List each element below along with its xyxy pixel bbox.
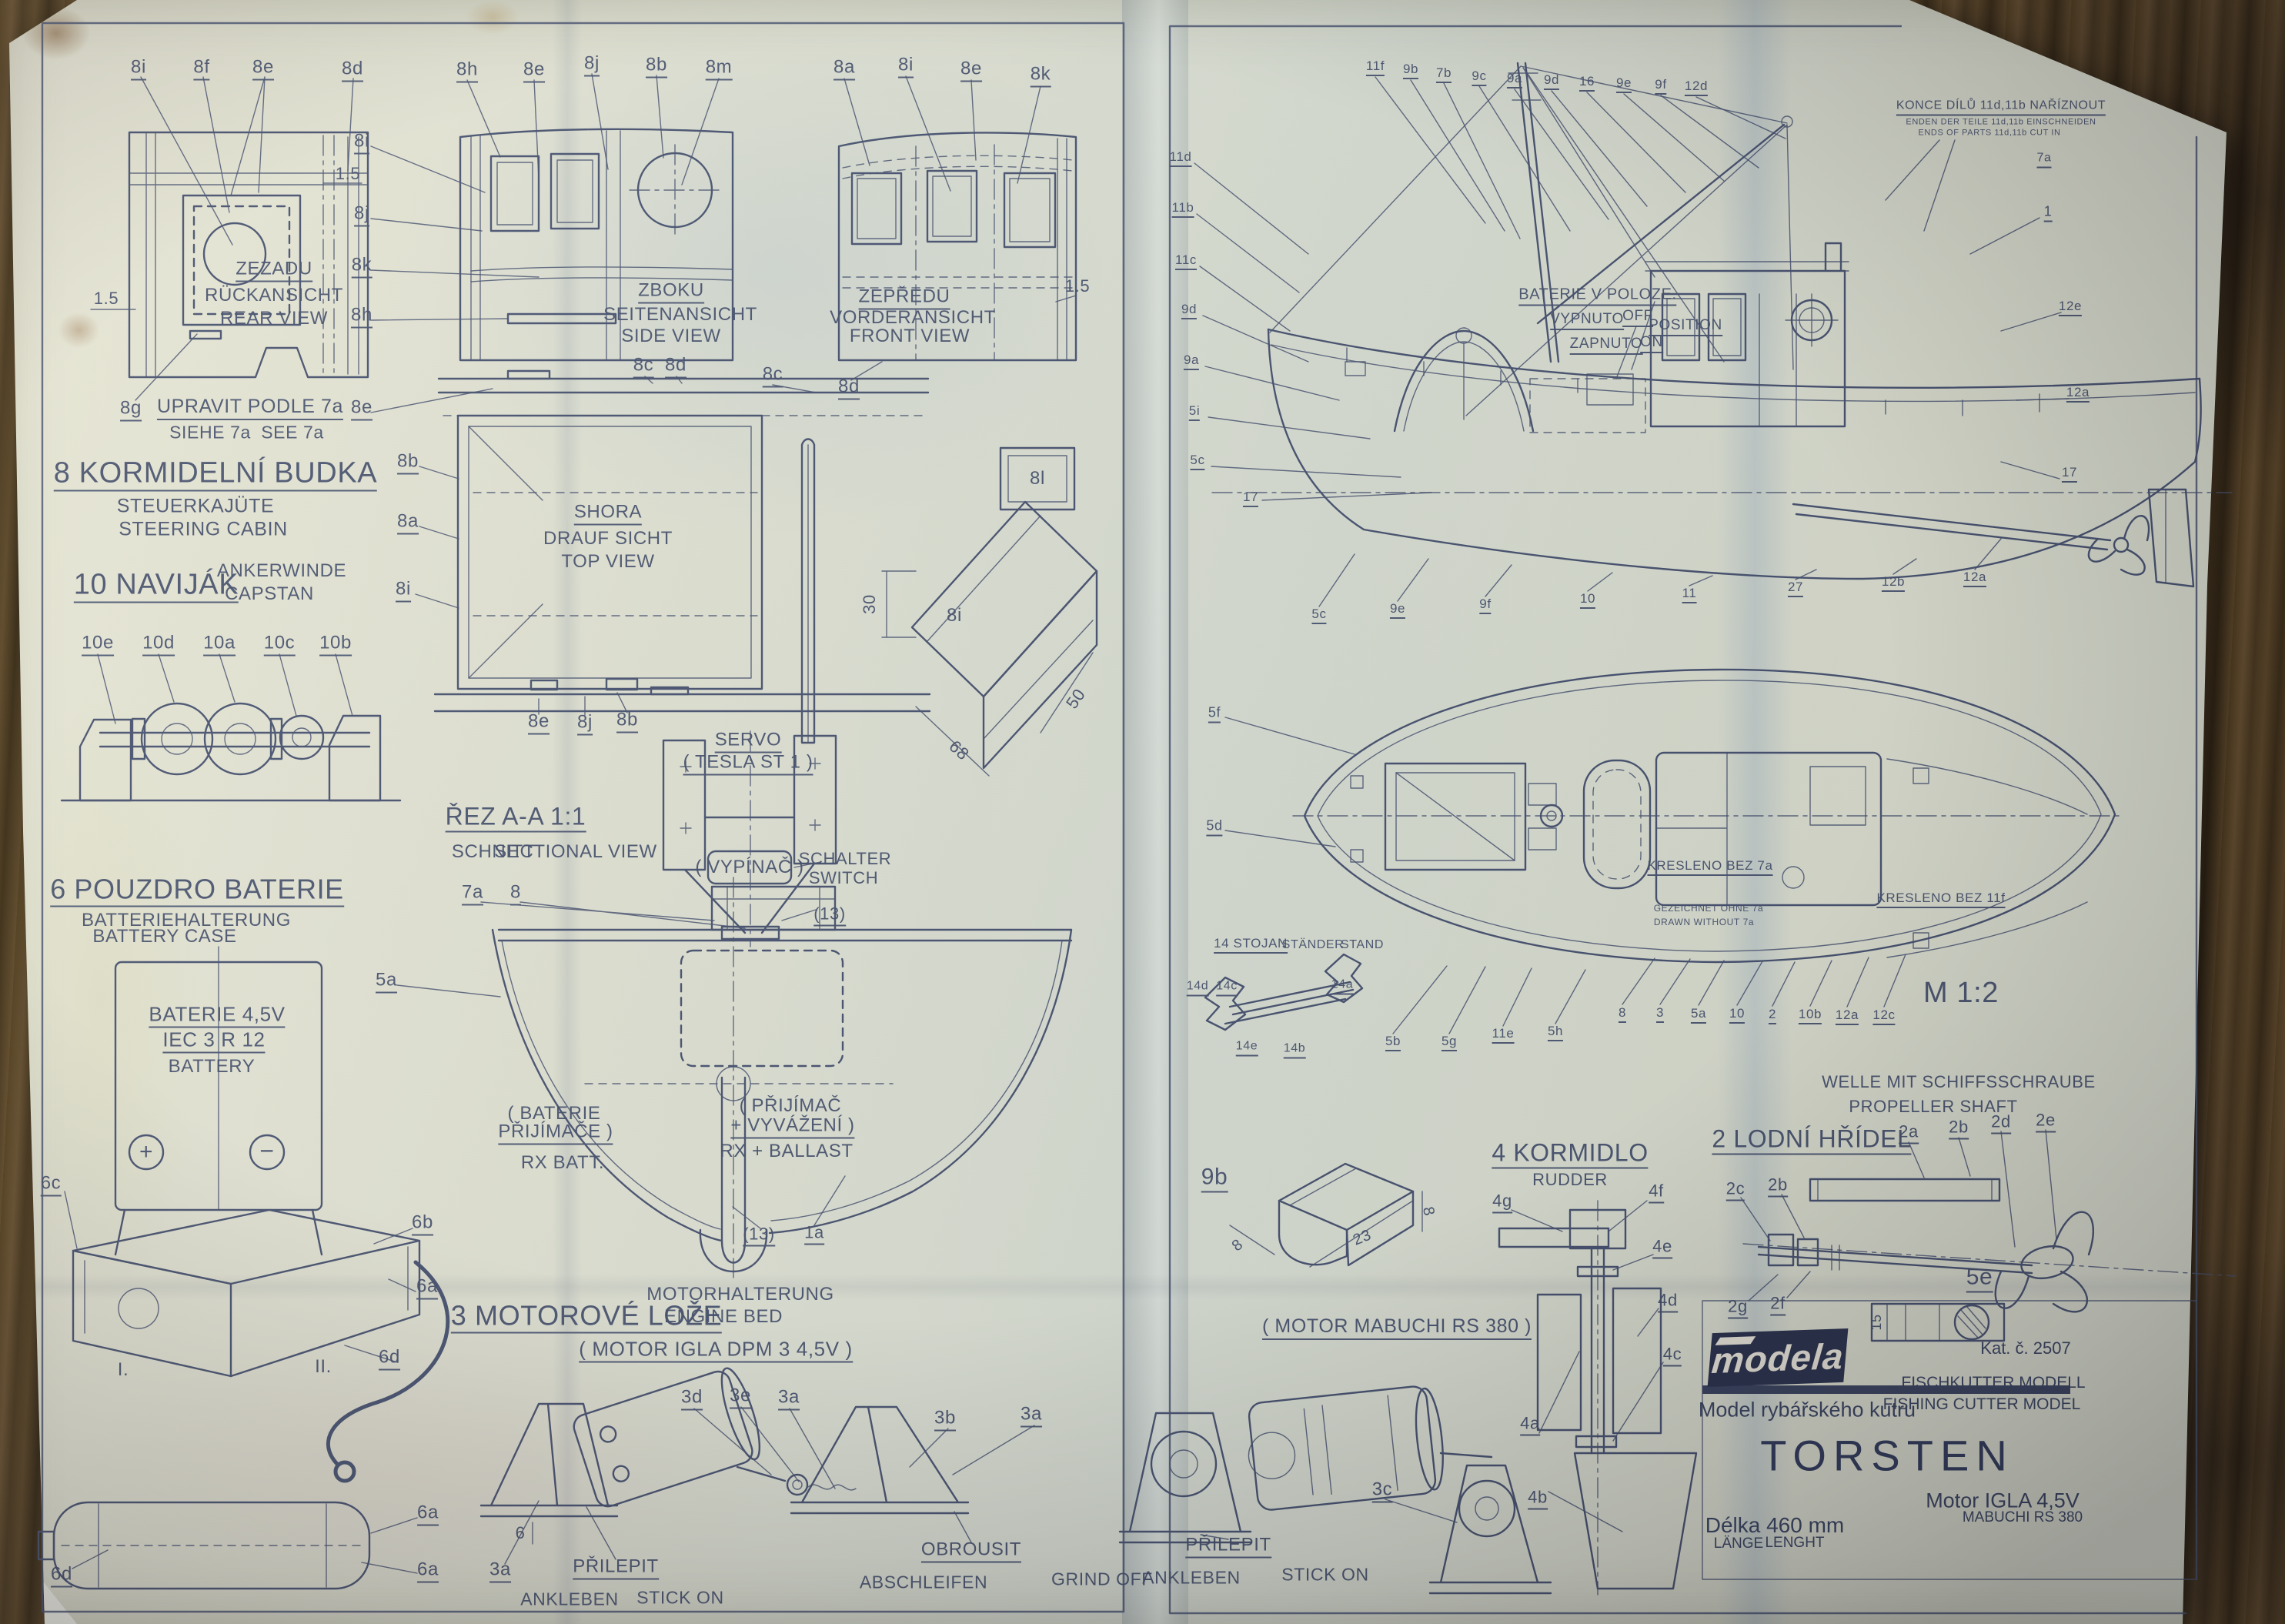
part-label: 8e xyxy=(523,61,545,83)
part-label: 4g xyxy=(1492,1193,1512,1214)
part-label: 2a xyxy=(1899,1124,1919,1144)
part-label: 8a xyxy=(833,58,855,81)
modela-logo-text: modela xyxy=(1710,1335,1846,1382)
part-label: 8h xyxy=(456,61,478,83)
part-label: DRAUF SICHT xyxy=(543,530,673,548)
part-label: PŘILEPIT xyxy=(573,1558,659,1580)
part-label: 6 POUZDRO BATERIE xyxy=(50,876,344,907)
part-label: 1.5 xyxy=(336,165,360,182)
part-label: 8i xyxy=(396,580,411,603)
part-label: STAND xyxy=(1341,939,1384,951)
part-label: 7a xyxy=(2037,152,2052,169)
part-label: KRESLENO BEZ 7a xyxy=(1647,859,1772,876)
part-label: M 1:2 xyxy=(1923,978,1999,1007)
part-label: 3c xyxy=(1372,1481,1393,1503)
part-label: SIEHE 7a xyxy=(169,424,251,442)
part-label: 8 KORMIDELNÍ BUDKA xyxy=(54,459,377,492)
battery-case-drawing xyxy=(115,947,322,1255)
part-label: VYPNUTO xyxy=(1550,312,1624,330)
part-label: 3a xyxy=(489,1561,511,1583)
part-label: ŘEZ A-A 1:1 xyxy=(446,804,586,833)
part-label: 11d xyxy=(1170,150,1192,167)
part-label: 10 xyxy=(1580,592,1595,609)
part-label: 9f xyxy=(1479,597,1491,614)
part-label: ANKLEBEN xyxy=(520,1591,619,1609)
part-label: STEERING CABIN xyxy=(119,520,288,540)
part-label: ENDS OF PARTS 11d,11b CUT IN xyxy=(1918,129,2060,138)
part-label: 2d xyxy=(1991,1114,2011,1134)
part-label: 9d xyxy=(1544,73,1559,90)
hull-cross-section xyxy=(397,877,1071,1278)
part-label: STICK ON xyxy=(1281,1566,1368,1584)
part-label: 5c xyxy=(1311,607,1326,624)
part-label: OBROUSIT xyxy=(921,1541,1021,1563)
part-label: SHORA xyxy=(574,503,642,526)
part-label: KONCE DÍLŮ 11d,11b NAŘÍZNOUT xyxy=(1896,100,2106,116)
part-label: FRONT VIEW xyxy=(850,327,970,346)
part-label: 27 xyxy=(1788,580,1803,597)
length-english: LENGHT xyxy=(1765,1535,1824,1552)
part-label: ENDEN DER TEILE 11d,11b EINSCHNEIDEN xyxy=(1906,119,2096,127)
part-label: 2 LODNÍ HŘÍDEL xyxy=(1712,1127,1911,1155)
part-label: 10a xyxy=(203,634,236,657)
part-label: 8l xyxy=(1030,469,1045,488)
part-label: (13) xyxy=(813,906,846,927)
part-label: ZEZADU xyxy=(236,260,312,282)
part-label: 4 KORMIDLO xyxy=(1492,1141,1648,1169)
part-label: 11f xyxy=(1366,59,1385,76)
part-label: 6d xyxy=(51,1566,72,1588)
part-label: 14c xyxy=(1216,981,1238,997)
part-label: 8e xyxy=(351,399,372,421)
part-label: 8k xyxy=(352,256,372,279)
part-label: 3d xyxy=(681,1388,703,1411)
part-label: 11c xyxy=(1175,253,1197,270)
part-label: 8f xyxy=(193,58,209,81)
part-label: 17 xyxy=(1243,490,1258,507)
part-label: 10d xyxy=(142,634,175,657)
part-label: MOTORHALTERUNG xyxy=(646,1285,834,1304)
part-label: I. xyxy=(118,1361,129,1379)
part-label: 14b xyxy=(1284,1043,1306,1059)
battery-holder-drawings xyxy=(38,1191,448,1589)
part-label: 3e xyxy=(730,1387,751,1409)
length-german: LÄNGE xyxy=(1714,1535,1763,1552)
part-label: II. xyxy=(315,1358,332,1376)
rudder-drawing xyxy=(1499,1201,1696,1595)
part-label: ABSCHLEIFEN xyxy=(860,1574,987,1592)
part-label: 4b xyxy=(1528,1489,1548,1510)
part-label: 14a xyxy=(1331,979,1354,995)
part-label: SEITENANSICHT xyxy=(603,306,757,324)
part-label: UPRAVIT PODLE 7a xyxy=(157,397,343,420)
part-label: 30 xyxy=(861,594,878,614)
part-label: 7a xyxy=(462,884,483,906)
part-label: KRESLENO BEZ 11f xyxy=(1876,891,2005,908)
part-label: 2e xyxy=(2036,1112,2056,1133)
part-label: SEE 7a xyxy=(261,424,324,442)
part-label: 12d xyxy=(1685,79,1708,96)
part-label: 14d xyxy=(1187,981,1209,997)
part-label: 6c xyxy=(41,1175,62,1197)
part-label: ON xyxy=(1640,335,1663,353)
part-label: 2 xyxy=(1769,1007,1776,1024)
part-label: 8e xyxy=(252,58,274,81)
part-label: ( VYPÍNAČ ) xyxy=(695,858,803,877)
part-label: 11b xyxy=(1172,201,1194,218)
part-label: IEC 3 R 12 xyxy=(162,1030,265,1054)
part-label: GEZEICHNET OHNE 7a xyxy=(1654,904,1764,913)
part-label: 12e xyxy=(2059,299,2082,316)
part-label: ANKLEBEN xyxy=(1142,1569,1241,1587)
part-label: ZAPNUTO xyxy=(1570,336,1643,355)
part-label: 8c xyxy=(763,366,783,388)
part-label: 8b xyxy=(616,711,638,733)
catalog-number: Kat. č. 2507 xyxy=(1980,1338,2070,1358)
part-label: RX + BALLAST xyxy=(720,1142,853,1161)
modela-logo: modela xyxy=(1708,1328,1849,1387)
cabin-top-view xyxy=(416,416,1097,776)
part-label: 12b xyxy=(1882,575,1905,592)
part-label: 5d xyxy=(1206,819,1222,837)
part-label: 10 NAVIJÁK xyxy=(74,570,239,603)
part-label: GRIND OFF xyxy=(1051,1571,1153,1589)
part-label: 9b xyxy=(1201,1166,1228,1193)
part-label: 16 xyxy=(1579,75,1595,92)
part-label: 1.5 xyxy=(94,290,119,307)
part-label: 9b xyxy=(1403,62,1418,79)
part-label: 5h xyxy=(1548,1024,1563,1041)
part-label: BATTERY CASE xyxy=(92,927,236,946)
part-label: 5a xyxy=(1691,1007,1706,1024)
part-label: 2g xyxy=(1728,1298,1748,1319)
part-label: PŘILEPIT xyxy=(1185,1536,1271,1559)
part-label: 8i xyxy=(898,56,914,79)
part-label: 17 xyxy=(2062,466,2077,483)
part-label: 5a xyxy=(376,971,397,994)
part-label: ( BATERIE xyxy=(508,1104,601,1123)
part-label: 1 xyxy=(2044,205,2053,222)
part-label: 10b xyxy=(319,634,352,657)
part-label: 2c xyxy=(1726,1181,1745,1201)
part-label: 9a xyxy=(1184,353,1199,370)
part-label: 6b xyxy=(412,1214,433,1236)
part-label: ANKERWINDE xyxy=(217,562,346,580)
part-label: 8 xyxy=(510,884,521,906)
part-label: 8i xyxy=(947,606,962,625)
part-label: 12c xyxy=(1872,1008,1895,1025)
part-label: SCHALTER xyxy=(799,850,892,867)
part-label: − xyxy=(259,1138,274,1163)
part-label: 8d xyxy=(665,356,687,379)
part-label: 4c xyxy=(1663,1346,1682,1367)
part-label: (13) xyxy=(743,1226,775,1247)
capstan-drawing xyxy=(62,654,400,800)
part-label: WELLE MIT SCHIFFSSCHRAUBE xyxy=(1822,1074,2096,1091)
part-label: BATERIE 4,5V xyxy=(149,1004,285,1028)
part-label: 8c xyxy=(633,356,654,379)
part-label: 8b xyxy=(646,56,667,79)
part-label: 8i xyxy=(354,132,369,155)
boat-name: TORSTEN xyxy=(1760,1431,2014,1481)
part-label: DRAWN WITHOUT 7a xyxy=(1654,917,1754,927)
part-label: 2b xyxy=(1768,1177,1788,1198)
part-label: 14e xyxy=(1236,1041,1258,1057)
part-label: 9c xyxy=(1472,69,1486,86)
part-label: SERVO xyxy=(715,731,782,754)
part-label: 6a xyxy=(416,1278,438,1300)
part-label: 11 xyxy=(1682,586,1697,603)
part-label: 8d xyxy=(838,378,860,400)
motor-spec-alt: MABUCHI RS 380 xyxy=(1963,1509,2083,1526)
part-label: SWITCH xyxy=(809,870,878,887)
part-label: 6a xyxy=(417,1561,439,1583)
part-label: 10e xyxy=(82,634,114,657)
part-label: BATTERY xyxy=(169,1058,256,1076)
part-label: VORDERANSICHT xyxy=(830,309,996,327)
part-label: STEUERKAJÜTE xyxy=(117,497,274,516)
part-label: SECTIONAL VIEW xyxy=(494,843,657,861)
part-label: 5g xyxy=(1441,1034,1457,1051)
part-label: BATERIE V POLOZE. xyxy=(1518,287,1676,306)
part-label: 3a xyxy=(1021,1405,1042,1428)
part-label: REAR VIEW xyxy=(220,309,328,328)
part-label: ( TESLA ST 1 ) xyxy=(683,754,813,776)
propeller-shaft-drawing xyxy=(1741,1130,2236,1341)
part-label: TOP VIEW xyxy=(561,553,654,571)
part-label: 10c xyxy=(264,634,296,657)
photo-of-plan-on-table: 8i8f8e8d1.51.5ZEZADURÜCKANSICHTREAR VIEW… xyxy=(0,0,2285,1624)
part-label: ENGINE BED xyxy=(664,1308,783,1326)
part-label: 4f xyxy=(1649,1183,1664,1204)
part-label: 5i xyxy=(1189,404,1200,421)
part-label: 4a xyxy=(1520,1415,1540,1436)
part-label: 5c xyxy=(1190,453,1204,470)
part-label: 8a xyxy=(397,513,419,535)
part-label: 11e xyxy=(1492,1027,1515,1044)
part-label: 1a xyxy=(804,1225,824,1245)
model-name-german: FISCHKUTTER MODELL xyxy=(1901,1374,2085,1392)
part-label: 9a xyxy=(1507,72,1522,89)
part-label: ( MOTOR IGLA DPM 3 4,5V ) xyxy=(579,1339,853,1363)
part-label: 12a xyxy=(2066,386,2090,403)
part-label: 1.5 xyxy=(1065,278,1090,295)
part-label: 15 xyxy=(1869,1314,1883,1330)
part-label: + VYVÁŽENÍ ) xyxy=(730,1117,854,1139)
part-label: STÄNDER xyxy=(1282,939,1345,951)
part-label: 10 xyxy=(1729,1007,1745,1024)
part-label: 14 STOJAN xyxy=(1214,937,1288,954)
part-label: ( MOTOR MABUCHI RS 380 ) xyxy=(1262,1317,1532,1340)
part-label: 8h xyxy=(351,306,372,329)
part-label: 8j xyxy=(584,55,600,77)
part-label: 9f xyxy=(1655,78,1666,95)
part-label: CAPSTAN xyxy=(225,585,314,603)
part-label: 4d xyxy=(1658,1292,1678,1313)
part-label: 12a xyxy=(1836,1008,1859,1025)
part-label: 6 xyxy=(516,1525,526,1542)
part-9b-drawing xyxy=(1230,1164,1422,1267)
part-label: 8e xyxy=(960,60,982,82)
model-name-english: FISHING CUTTER MODEL xyxy=(1883,1395,2081,1414)
part-label: 9e xyxy=(1616,76,1632,93)
part-label: 2b xyxy=(1949,1119,1969,1140)
part-label: 2f xyxy=(1770,1295,1786,1316)
part-label: 3 xyxy=(1656,1006,1664,1023)
part-label: 4e xyxy=(1652,1238,1672,1259)
part-label: RX BATT. xyxy=(521,1154,604,1172)
part-label: SIDE VIEW xyxy=(621,327,720,346)
part-label: 8j xyxy=(577,713,593,736)
part-label: 6a xyxy=(417,1504,439,1526)
part-label: 8 xyxy=(1619,1006,1626,1023)
part-label: 8d xyxy=(342,60,363,82)
part-label: 8e xyxy=(528,713,550,735)
part-label: 5b xyxy=(1385,1034,1401,1051)
part-label: STICK ON xyxy=(636,1589,723,1607)
part-label: RÜCKANSICHT xyxy=(205,286,343,305)
part-label: 5f xyxy=(1208,706,1221,723)
part-label: 8b xyxy=(397,453,419,475)
part-label: 5e xyxy=(1966,1266,1993,1293)
part-label: RUDDER xyxy=(1532,1171,1608,1188)
cabin-rear-view xyxy=(91,77,368,400)
part-label: 3a xyxy=(778,1388,800,1411)
part-label: 8m xyxy=(706,58,733,81)
part-label: 12a xyxy=(1963,570,1986,587)
part-label: 9e xyxy=(1390,602,1405,619)
part-label: ( PŘIJÍMAČ xyxy=(740,1097,842,1115)
part-label: 8k xyxy=(1031,65,1051,88)
part-label: PŘIJÍMAČE ) xyxy=(498,1123,613,1145)
part-label: 8g xyxy=(120,399,142,422)
part-label: 9d xyxy=(1181,302,1197,319)
part-label: ZBOKU xyxy=(638,282,704,304)
part-label: 6d xyxy=(379,1348,400,1371)
part-label: 10b xyxy=(1799,1007,1822,1024)
part-label: 8i xyxy=(131,58,146,81)
part-label: 3b xyxy=(934,1409,956,1432)
part-label: 8j xyxy=(354,205,369,227)
part-label: + xyxy=(139,1141,153,1164)
part-label: 7b xyxy=(1436,66,1452,83)
